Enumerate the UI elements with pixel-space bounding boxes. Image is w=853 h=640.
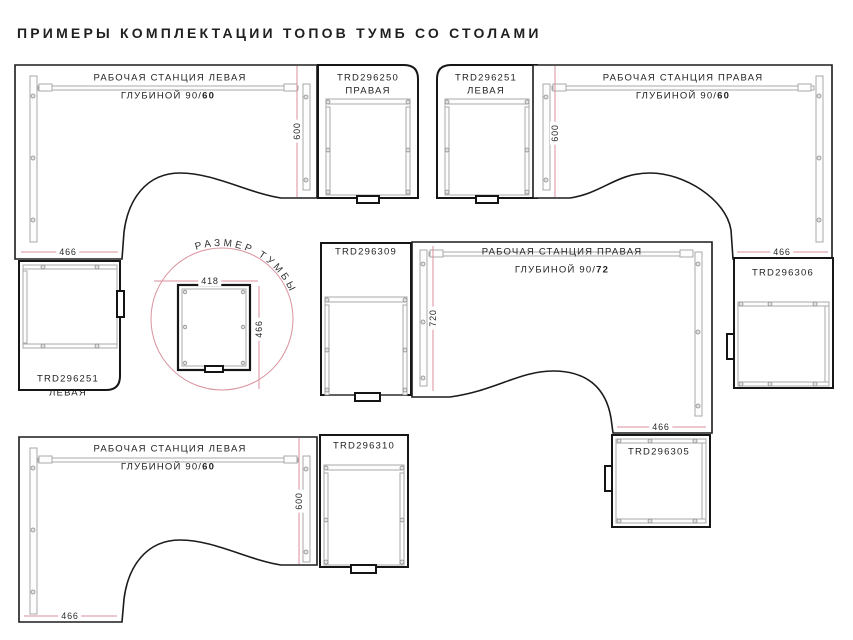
cabinet-outline: [19, 261, 120, 390]
ws3-name: РАБОЧАЯ СТАНЦИЯ ПРАВАЯ: [482, 247, 643, 258]
cabinet-handle: [357, 196, 379, 203]
ws1-name: РАБОЧАЯ СТАНЦИЯ ЛЕВАЯ: [93, 73, 246, 84]
cab-trd296251-top-code: TRD296251: [455, 73, 517, 84]
cabinet-handle: [727, 334, 734, 359]
support-beam: [38, 86, 298, 90]
cab-trd296309-code: TRD296309: [335, 247, 397, 258]
cabinet-handle: [117, 291, 124, 317]
cabinet-trd296251-side: [19, 261, 124, 390]
ws2-depth-bold: 60: [717, 91, 730, 102]
ws4-depth-dim: 600: [294, 489, 304, 512]
cab-trd296250-code: TRD296250: [337, 73, 399, 84]
ws4-name: РАБОЧАЯ СТАНЦИЯ ЛЕВАЯ: [93, 444, 246, 455]
ws1-depth-label: ГЛУБИНОЙ 90/60: [121, 91, 215, 102]
ws4-depth-label: ГЛУБИНОЙ 90/60: [121, 462, 215, 473]
cabinet-top-outline: [178, 285, 250, 370]
cab-trd296251-top-variant: ЛЕВАЯ: [467, 86, 505, 97]
ws3-depth-prefix: ГЛУБИНОЙ 90/: [515, 265, 596, 276]
cab-trd296305-code: TRD296305: [628, 447, 690, 458]
ws4-width-dim: 466: [58, 611, 81, 621]
cab-trd296250-variant: ПРАВАЯ: [345, 86, 390, 97]
cab-trd296251-side-variant: ЛЕВАЯ: [49, 388, 87, 399]
ws3-depth-bold: 72: [596, 265, 609, 276]
cabinet-outline: [321, 243, 411, 395]
ws2-depth-label: ГЛУБИНОЙ 90/60: [636, 91, 730, 102]
ws2-width-dim: 466: [770, 247, 793, 257]
cabinet-outline: [320, 435, 408, 567]
support-beam: [552, 86, 814, 90]
cab-trd296310-code: TRD296310: [333, 441, 395, 452]
ws2-depth-dim: 600: [550, 121, 560, 144]
support-rail: [420, 250, 427, 386]
cabinet-trd296309: [321, 243, 411, 401]
page: РАЗМЕР ТУМБЫ: [0, 0, 853, 640]
ws1-depth-prefix: ГЛУБИНОЙ 90/: [121, 91, 202, 102]
ws2-depth-prefix: ГЛУБИНОЙ 90/: [636, 91, 717, 102]
page-title: ПРИМЕРЫ КОМПЛЕКТАЦИИ ТОПОВ ТУМБ СО СТОЛА…: [17, 25, 542, 41]
cab-trd296306-code: TRD296306: [752, 268, 814, 279]
ws3-width-dim: 466: [649, 422, 672, 432]
ws1-width-dim: 466: [56, 247, 79, 257]
callout-width-dim: 418: [198, 276, 221, 286]
callout-depth-dim: 466: [254, 317, 264, 340]
ws3-depth-label: ГЛУБИНОЙ 90/72: [515, 265, 609, 276]
ws3-depth-dim: 720: [428, 306, 438, 329]
cabinet-handle: [476, 196, 498, 203]
ws1-depth-dim: 600: [292, 119, 302, 142]
cabinet-handle: [605, 466, 612, 491]
cabinet-handle: [355, 393, 380, 401]
support-rail: [543, 84, 550, 190]
cabinet-handle: [351, 565, 376, 573]
support-rail: [303, 456, 310, 562]
cabinet-handle: [205, 366, 223, 372]
cabinet-size-callout: РАЗМЕР ТУМБЫ: [151, 238, 298, 390]
ws4-depth-bold: 60: [202, 462, 215, 473]
support-rail: [303, 84, 310, 190]
ws2-name: РАБОЧАЯ СТАНЦИЯ ПРАВАЯ: [603, 73, 764, 84]
ws4-depth-prefix: ГЛУБИНОЙ 90/: [121, 462, 202, 473]
ws1-depth-bold: 60: [202, 91, 215, 102]
cab-trd296251-side-code: TRD296251: [37, 374, 99, 385]
cabinet-trd296310: [320, 435, 408, 573]
